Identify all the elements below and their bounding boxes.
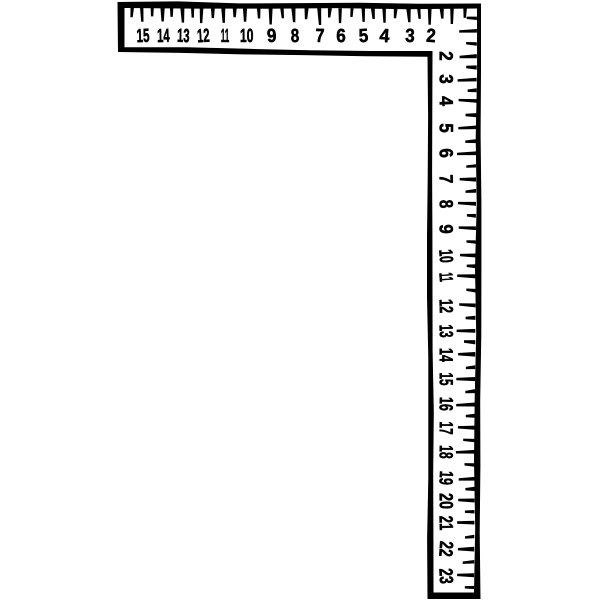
svg-text:4: 4 <box>435 96 456 107</box>
svg-text:8: 8 <box>434 199 455 209</box>
svg-text:2: 2 <box>435 51 456 61</box>
svg-text:14: 14 <box>157 26 170 47</box>
svg-text:16: 16 <box>434 397 455 412</box>
svg-text:15: 15 <box>435 372 456 385</box>
svg-text:12: 12 <box>435 299 456 314</box>
svg-text:6: 6 <box>336 26 346 47</box>
svg-text:6: 6 <box>434 148 456 159</box>
svg-text:18: 18 <box>435 445 456 459</box>
svg-text:5: 5 <box>358 26 369 48</box>
svg-text:11: 11 <box>221 26 230 47</box>
svg-text:7: 7 <box>315 26 324 47</box>
svg-text:21: 21 <box>435 516 456 531</box>
svg-text:4: 4 <box>379 26 391 48</box>
svg-text:10: 10 <box>434 249 456 264</box>
svg-text:20: 20 <box>435 493 456 509</box>
svg-text:19: 19 <box>434 470 456 485</box>
svg-text:5: 5 <box>435 123 456 133</box>
svg-text:9: 9 <box>266 26 277 48</box>
svg-text:12: 12 <box>196 26 210 48</box>
svg-text:15: 15 <box>136 26 150 48</box>
svg-text:23: 23 <box>434 568 456 585</box>
svg-text:11: 11 <box>434 272 456 283</box>
svg-text:17: 17 <box>435 421 456 434</box>
svg-text:10: 10 <box>240 26 254 47</box>
svg-text:3: 3 <box>405 26 415 47</box>
svg-text:9: 9 <box>435 224 456 234</box>
svg-text:2: 2 <box>426 26 437 48</box>
svg-text:8: 8 <box>291 26 300 47</box>
svg-text:3: 3 <box>435 74 456 84</box>
svg-text:14: 14 <box>435 348 456 363</box>
svg-text:22: 22 <box>434 540 456 557</box>
svg-text:13: 13 <box>177 26 190 47</box>
svg-text:13: 13 <box>434 324 455 338</box>
svg-text:7: 7 <box>435 174 456 184</box>
